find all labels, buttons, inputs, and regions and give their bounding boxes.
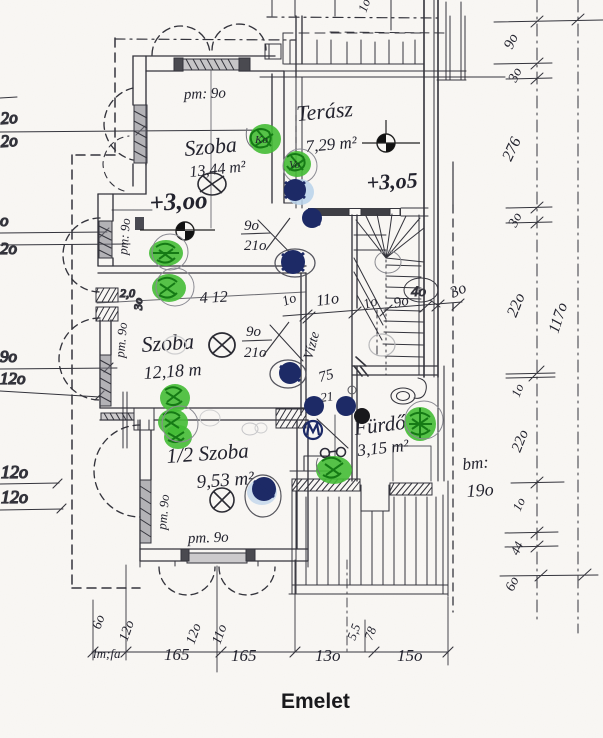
svg-text:3o: 3o <box>131 298 145 311</box>
svg-text:Emelet: Emelet <box>281 690 350 713</box>
svg-text:4o: 4o <box>411 284 427 300</box>
svg-text:bm:: bm: <box>461 452 489 474</box>
svg-text:lm;fa: lm;fa <box>93 646 121 661</box>
svg-text:Szoba: Szoba <box>183 131 238 160</box>
svg-text:Szoba: Szoba <box>141 328 195 357</box>
svg-text:4 12: 4 12 <box>199 289 228 307</box>
svg-text:165: 165 <box>231 646 257 665</box>
svg-text:15o: 15o <box>397 646 423 665</box>
svg-text:12o: 12o <box>0 369 26 388</box>
svg-text:2o: 2o <box>0 239 17 258</box>
svg-text:21o: 21o <box>244 238 267 254</box>
svg-text:9o: 9o <box>0 347 17 366</box>
svg-text:165: 165 <box>164 645 190 664</box>
svg-text:2o: 2o <box>0 131 18 151</box>
svg-text:12o: 12o <box>1 487 28 507</box>
svg-text:11o: 11o <box>315 290 340 310</box>
svg-text:o: o <box>0 211 9 230</box>
svg-text:+3,oo: +3,oo <box>149 187 208 217</box>
svg-text:19o: 19o <box>466 479 494 501</box>
svg-text:13o: 13o <box>315 646 341 665</box>
svg-text:9o: 9o <box>246 324 262 340</box>
svg-text:Terász: Terász <box>295 96 354 126</box>
svg-text:pm. 9o: pm. 9o <box>187 530 230 547</box>
svg-text:12o: 12o <box>1 462 28 482</box>
svg-text:2,0: 2,0 <box>120 286 135 300</box>
svg-text:12,18 m: 12,18 m <box>143 359 202 383</box>
svg-text:9o: 9o <box>244 218 260 234</box>
svg-text:pm: 9o: pm: 9o <box>183 86 227 104</box>
svg-text:pm. 9o: pm. 9o <box>112 321 130 359</box>
svg-text:+3,o5: +3,o5 <box>366 167 418 195</box>
svg-text:Vo: Vo <box>289 159 301 171</box>
svg-text:2o: 2o <box>0 108 18 128</box>
svg-text:pm. 9o: pm. 9o <box>154 493 172 531</box>
svg-text:21o: 21o <box>244 345 267 361</box>
svg-text:Ko: Ko <box>254 134 268 146</box>
